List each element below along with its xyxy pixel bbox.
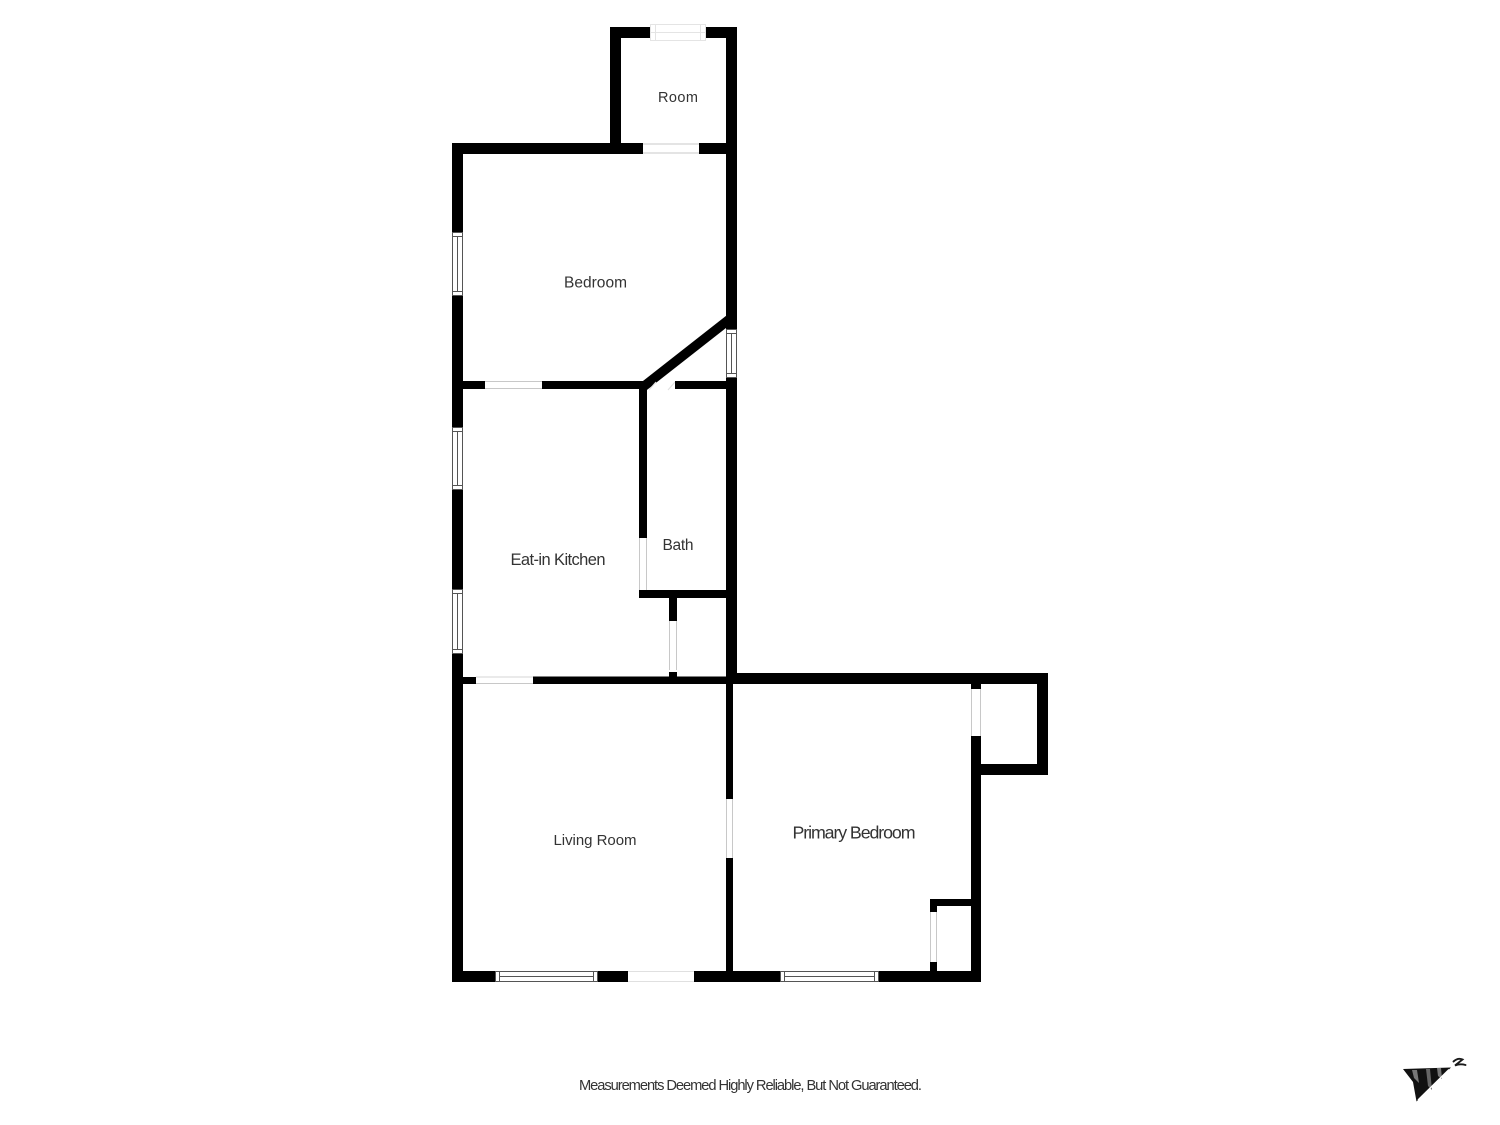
svg-text:Room: Room [658, 90, 698, 106]
svg-text:Eat-in Kitchen: Eat-in Kitchen [511, 551, 606, 569]
svg-text:Bath: Bath [663, 537, 694, 554]
svg-text:Living Room: Living Room [554, 832, 637, 849]
svg-text:Measurements Deemed Highly Rel: Measurements Deemed Highly Reliable, But… [579, 1078, 922, 1094]
svg-text:Bedroom: Bedroom [564, 275, 627, 292]
svg-text:Primary Bedroom: Primary Bedroom [793, 823, 916, 843]
